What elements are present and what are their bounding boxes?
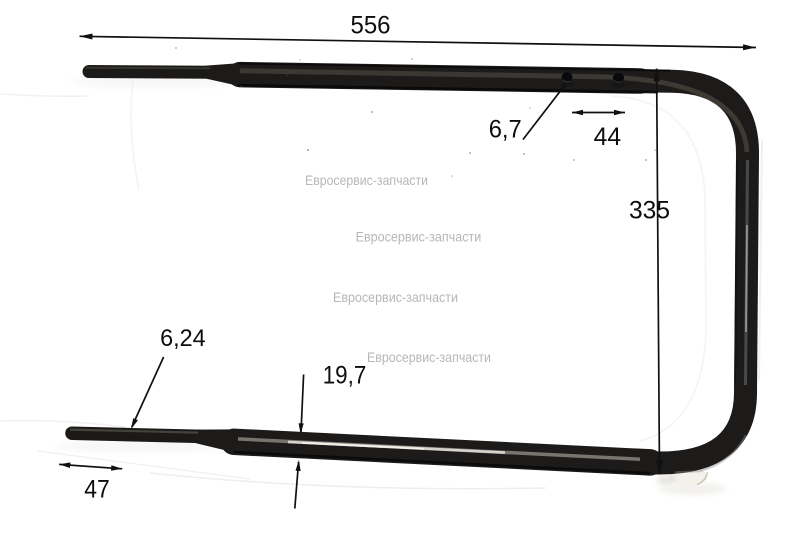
svg-text:335: 335 — [629, 196, 670, 224]
svg-text:Евросервис-запчасти: Евросервис-запчасти — [305, 173, 428, 188]
svg-text:Евросервис-запчасти: Евросервис-запчасти — [333, 290, 458, 305]
svg-text:19,7: 19,7 — [323, 362, 367, 390]
svg-text:44: 44 — [594, 123, 622, 151]
svg-text:6,7: 6,7 — [489, 116, 522, 144]
svg-text:Евросервис-запчасти: Евросервис-запчасти — [356, 229, 482, 244]
svg-text:6,24: 6,24 — [160, 325, 206, 352]
svg-text:556: 556 — [351, 12, 391, 40]
svg-text:47: 47 — [84, 476, 110, 504]
svg-text:Евросервис-запчасти: Евросервис-запчасти — [367, 350, 491, 365]
